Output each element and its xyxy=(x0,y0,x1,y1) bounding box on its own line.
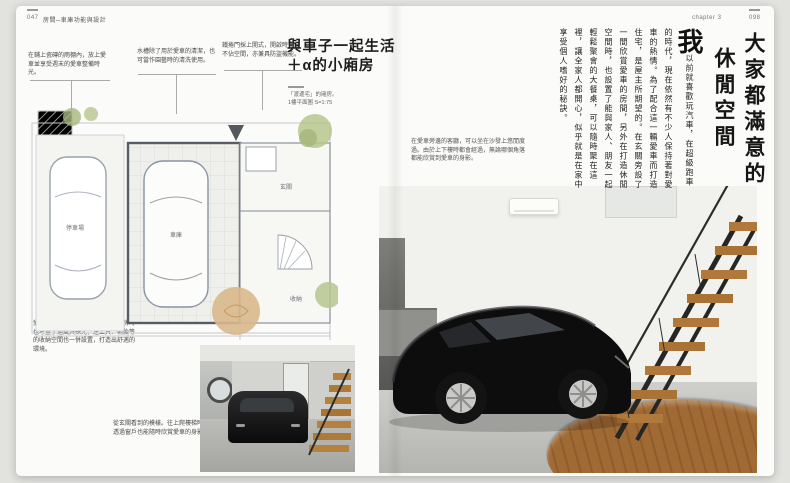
plan-annotation-5: 從玄關看到的模樣。往上爬樓梯時，透過窗戶也能隨時欣賞愛車的身影。 xyxy=(113,420,209,437)
plan-label-entrance: 玄關 xyxy=(280,183,292,191)
book-spread-photo: { "header": { "left_num": "047", "left_t… xyxy=(0,0,790,483)
tree-tan xyxy=(212,287,260,335)
article-text: 以前就喜歡玩汽車，在超級跑車的時代，現在依然有不少人保持著對愛車的熱情。為了配合… xyxy=(559,28,694,190)
windshield xyxy=(240,398,294,412)
black-sports-car xyxy=(389,307,631,432)
photo-caption: 在愛車旁邊的客廳，可以坐在沙發上悠閒度過。由於上下樓時都會經過，無論哪個角落都能… xyxy=(411,138,525,164)
open-book-spread: 047 房間─車庫功能與設計 chapter 3 098 在鋪上瓷磚的雨棚內，放… xyxy=(16,6,774,476)
article-body-vertical: 我以前就喜歡玩汽車，在超級跑車的時代，現在依然有不少人保持著對愛車的熱情。為了配… xyxy=(552,28,702,195)
photo-detail-art xyxy=(379,186,757,473)
article-title-line1: 大家都滿意的 xyxy=(738,32,768,272)
living-room-photo xyxy=(379,186,757,473)
garage-photo xyxy=(200,345,355,472)
article-title-vertical: 大家都滿意的 休閒空間 xyxy=(702,32,768,272)
plan-caption-line1: 「渡邊宅」的廂房。 xyxy=(288,92,338,100)
chapter-label: chapter 3 xyxy=(692,15,722,21)
header-rule-left xyxy=(27,9,38,11)
header-rule-right xyxy=(749,9,760,11)
plan-label-parking: 停車場 xyxy=(66,224,84,232)
leader-line xyxy=(262,70,263,110)
floor-plan-drawing: 停車場 車庫 玄關 收納 xyxy=(28,105,338,340)
plan-annotation-2: 水槽除了用於愛車的清潔，也可當作園藝時的清洗使用。 xyxy=(137,48,217,65)
plan-label-storage: 收納 xyxy=(290,295,302,303)
page-number-right: 098 xyxy=(749,15,761,21)
black-car-front xyxy=(228,391,308,443)
page-number-left: 047 xyxy=(27,15,39,21)
article-title-line2: 休閒空間 xyxy=(708,32,738,272)
running-head-left: 房間─車庫功能與設計 xyxy=(43,15,106,24)
title-rule xyxy=(288,86,304,88)
wood-stairs xyxy=(303,361,353,465)
leader-line xyxy=(30,80,110,81)
spread-title-block: 與車子一起生活 ＋α的小廂房 xyxy=(287,38,397,76)
headlight xyxy=(291,424,300,427)
entrance-arrow xyxy=(228,125,244,141)
spread-title-line1: 與車子一起生活 xyxy=(287,38,397,57)
plan-label-garage: 車庫 xyxy=(170,231,182,239)
tree-green xyxy=(63,108,81,126)
headlight xyxy=(236,424,245,427)
leader-line xyxy=(138,74,216,75)
spread-title-line2: ＋α的小廂房 xyxy=(287,57,397,76)
book-spine-shadow xyxy=(387,6,403,476)
photo-ceiling xyxy=(200,345,355,362)
bathroom xyxy=(246,147,276,171)
plan-annotation-1: 在鋪上瓷磚的雨棚內，放上愛車並享受週末的愛車整備時光。 xyxy=(28,52,108,78)
drop-cap: 我 xyxy=(674,28,704,54)
